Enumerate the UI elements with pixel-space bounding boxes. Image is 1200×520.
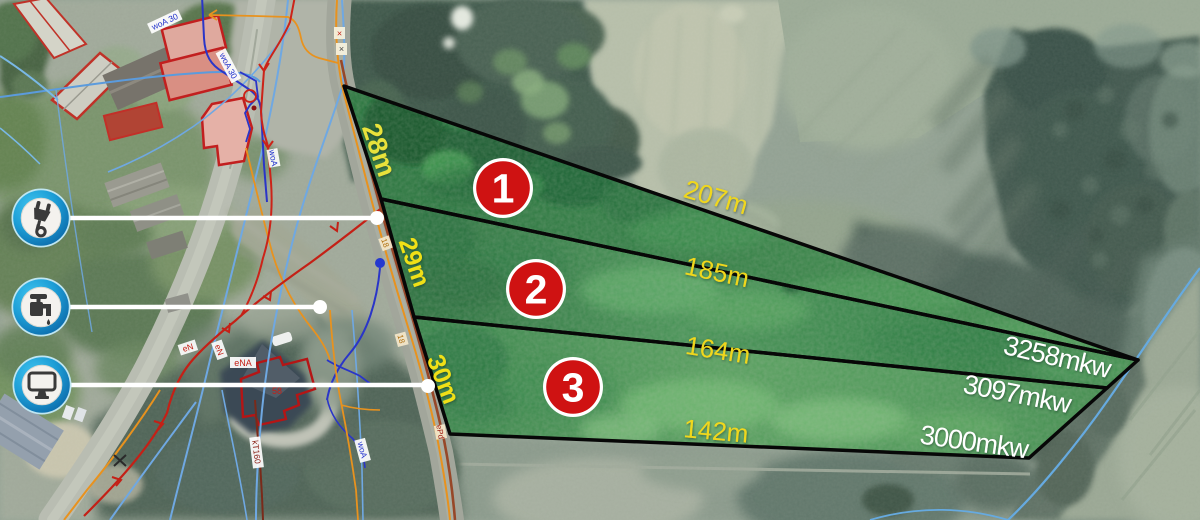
svg-text:2: 2: [525, 267, 548, 313]
svg-text:×: ×: [339, 44, 344, 54]
svg-text:3: 3: [562, 365, 585, 411]
svg-text:58: 58: [272, 386, 282, 396]
svg-text:142m: 142m: [682, 413, 749, 449]
svg-text:eNA: eNA: [234, 358, 252, 368]
svg-text:1: 1: [492, 166, 515, 212]
svg-text:×: ×: [337, 29, 342, 39]
